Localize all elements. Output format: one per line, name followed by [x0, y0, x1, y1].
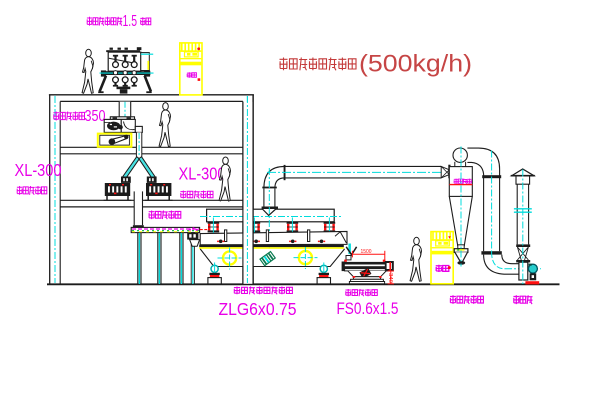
svg-text:1.5: 1.5: [123, 13, 138, 30]
svg-text:XL-300: XL-300: [15, 160, 62, 180]
svg-text:350: 350: [85, 108, 106, 125]
svg-text:XL-300: XL-300: [179, 163, 226, 183]
svg-text:FS0.6x1.5: FS0.6x1.5: [337, 300, 399, 318]
svg-text:1500: 1500: [361, 249, 372, 255]
svg-text:ZLG6x0.75: ZLG6x0.75: [219, 299, 297, 319]
svg-text:(500kg/h): (500kg/h): [359, 51, 472, 78]
svg-text:340: 340: [387, 273, 393, 283]
